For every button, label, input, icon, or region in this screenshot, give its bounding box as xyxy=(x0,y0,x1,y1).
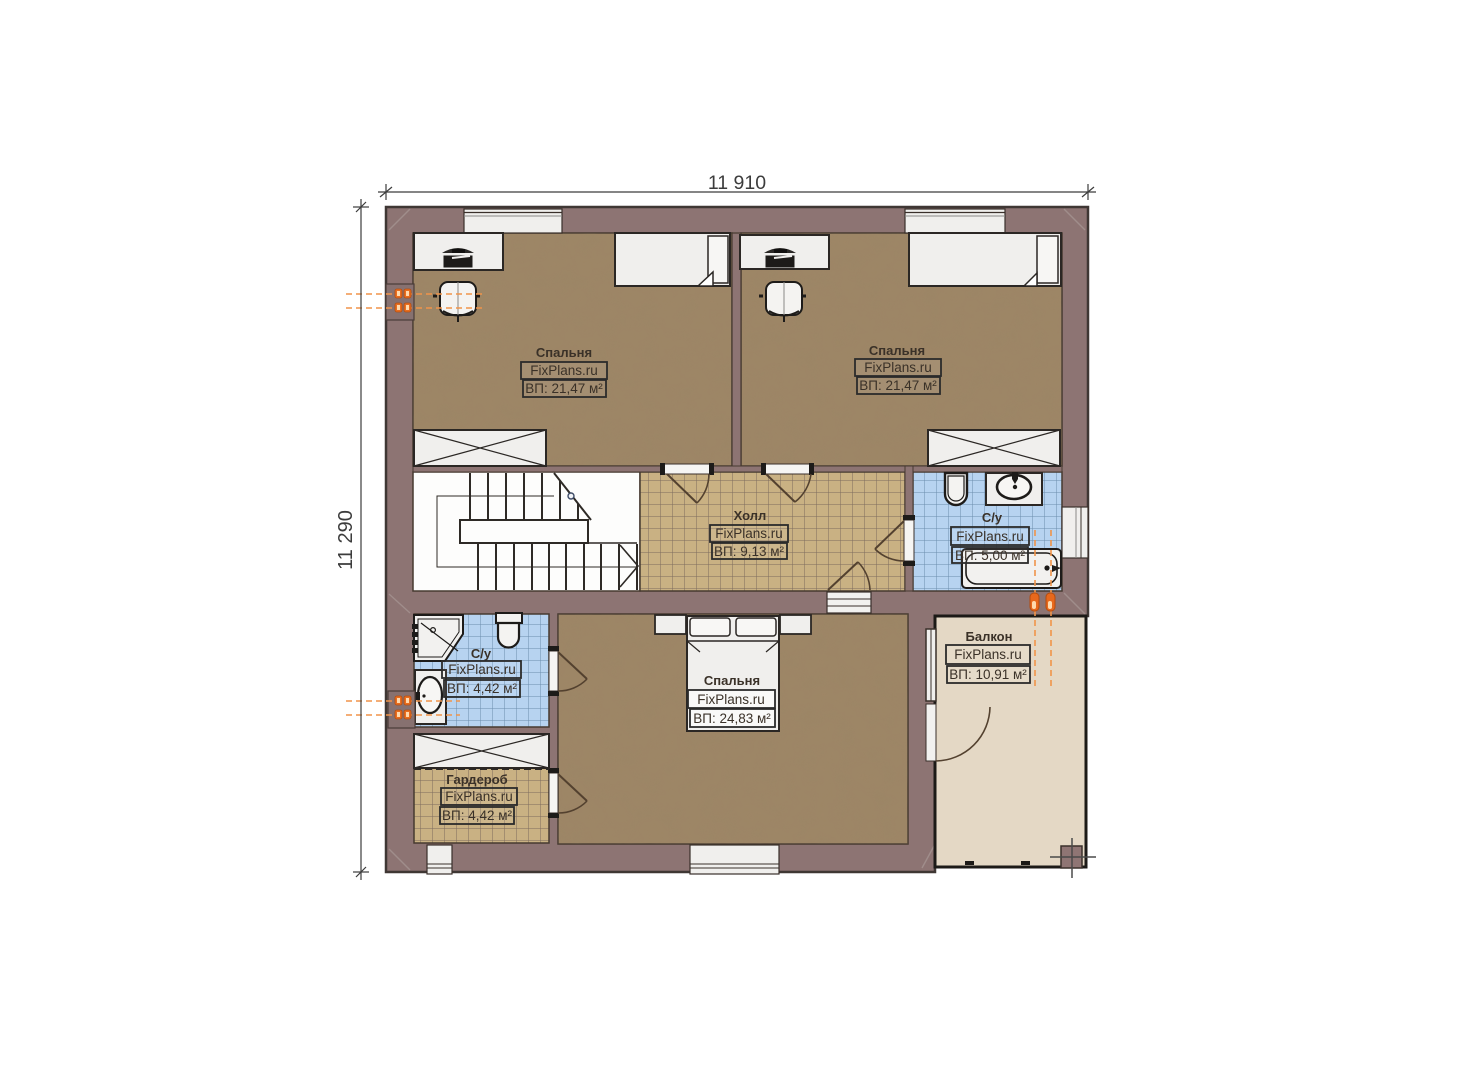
svg-text:ВП: 4,42 м²: ВП: 4,42 м² xyxy=(442,808,513,823)
svg-text:FixPlans.ru: FixPlans.ru xyxy=(954,647,1022,662)
svg-text:Гардероб: Гардероб xyxy=(446,772,507,787)
svg-text:FixPlans.ru: FixPlans.ru xyxy=(530,363,598,378)
svg-text:ВП: 4,42 м²: ВП: 4,42 м² xyxy=(447,681,518,696)
svg-text:FixPlans.ru: FixPlans.ru xyxy=(697,692,765,707)
svg-text:Спальня: Спальня xyxy=(704,673,760,688)
svg-text:С/у: С/у xyxy=(471,646,492,661)
svg-text:FixPlans.ru: FixPlans.ru xyxy=(715,526,783,541)
svg-text:Балкон: Балкон xyxy=(966,629,1013,644)
svg-text:С/у: С/у xyxy=(982,510,1003,525)
svg-text:ВП: 9,13 м²: ВП: 9,13 м² xyxy=(714,544,785,559)
svg-text:FixPlans.ru: FixPlans.ru xyxy=(448,662,516,677)
svg-text:FixPlans.ru: FixPlans.ru xyxy=(445,789,513,804)
svg-text:ВП: 21,47 м²: ВП: 21,47 м² xyxy=(859,378,937,393)
svg-text:11 910: 11 910 xyxy=(708,172,766,194)
svg-text:ВП: 5,00 м²: ВП: 5,00 м² xyxy=(955,548,1026,563)
svg-text:11 290: 11 290 xyxy=(335,510,357,570)
svg-text:Спальня: Спальня xyxy=(869,343,925,358)
svg-text:ВП: 10,91 м²: ВП: 10,91 м² xyxy=(949,667,1027,682)
svg-text:FixPlans.ru: FixPlans.ru xyxy=(956,529,1024,544)
svg-text:FixPlans.ru: FixPlans.ru xyxy=(864,360,932,375)
svg-text:ВП: 21,47 м²: ВП: 21,47 м² xyxy=(525,381,603,396)
svg-text:ВП: 24,83 м²: ВП: 24,83 м² xyxy=(693,711,771,726)
svg-text:Спальня: Спальня xyxy=(536,345,592,360)
svg-text:Холл: Холл xyxy=(734,508,767,523)
